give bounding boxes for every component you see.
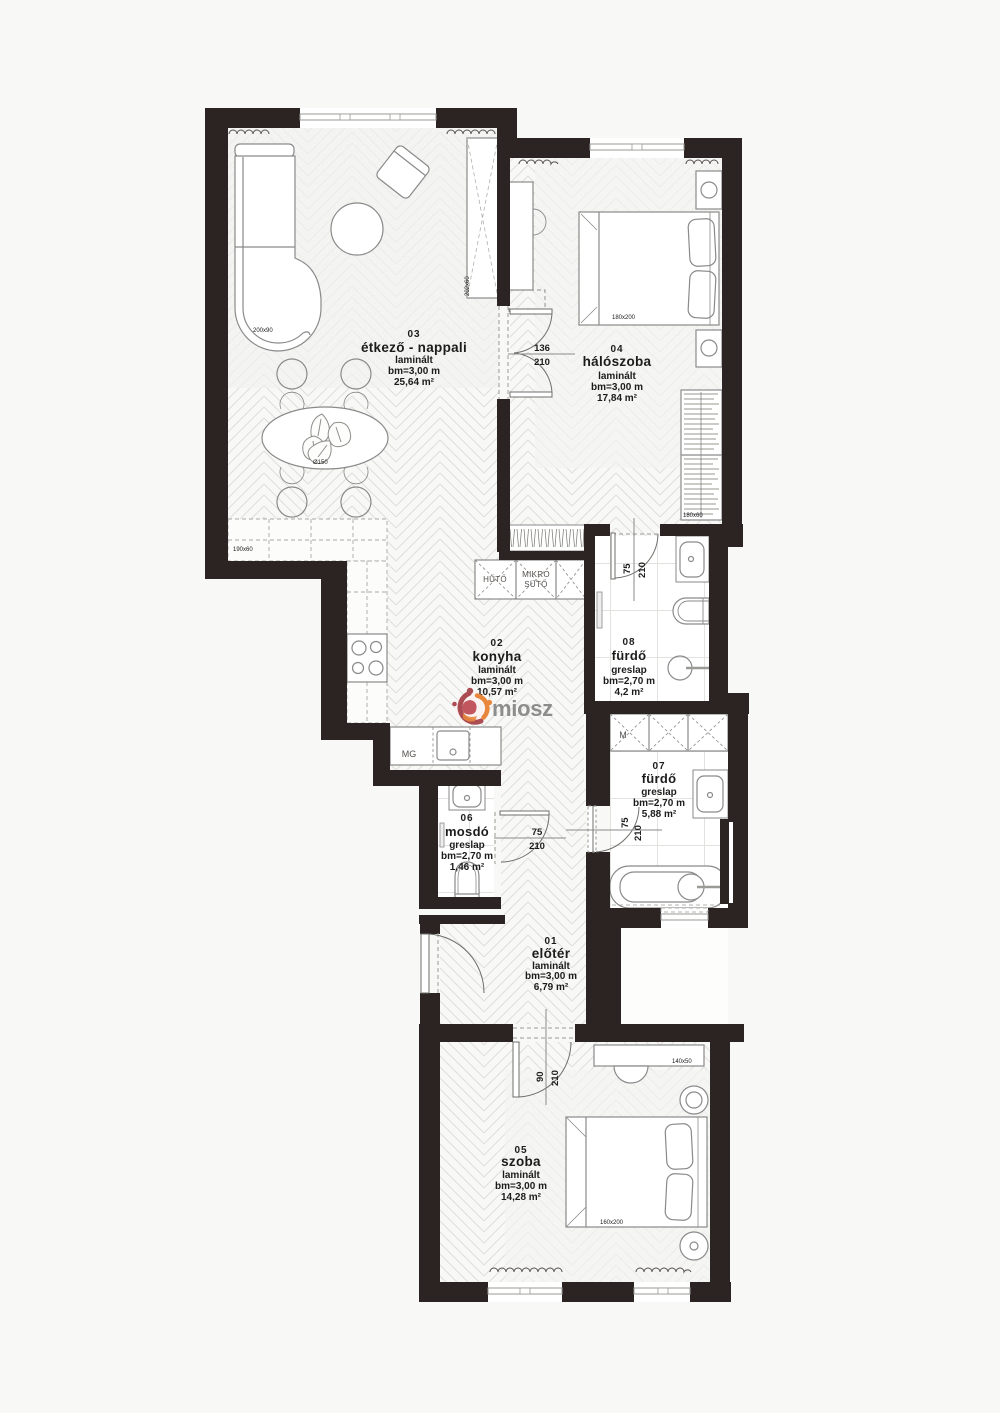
svg-text:bm=2,70 m: bm=2,70 m [603, 676, 655, 687]
svg-text:mosdó: mosdó [445, 824, 489, 839]
svg-text:06: 06 [460, 813, 473, 824]
svg-text:08: 08 [622, 637, 635, 648]
svg-text:210: 210 [633, 825, 644, 841]
svg-text:miosz: miosz [492, 696, 553, 721]
svg-text:MIKRO: MIKRO [522, 570, 550, 579]
svg-text:hálószoba: hálószoba [583, 354, 652, 369]
svg-text:75: 75 [532, 827, 543, 838]
svg-text:75: 75 [622, 563, 633, 574]
svg-text:fürdő: fürdő [642, 771, 677, 786]
svg-text:4,2 m²: 4,2 m² [615, 687, 645, 698]
svg-text:75: 75 [620, 817, 631, 828]
svg-text:1,46 m²: 1,46 m² [450, 862, 485, 873]
svg-text:136: 136 [534, 343, 550, 354]
svg-text:Ø150: Ø150 [313, 460, 328, 466]
svg-text:bm=3,00 m: bm=3,00 m [591, 382, 643, 393]
svg-text:202x60: 202x60 [465, 276, 471, 296]
svg-text:210: 210 [534, 357, 550, 368]
svg-text:laminált: laminált [395, 355, 433, 366]
svg-text:előtér: előtér [532, 946, 571, 961]
svg-text:fürdő: fürdő [612, 648, 647, 663]
svg-text:MG: MG [402, 749, 417, 759]
svg-text:bm=3,00 m: bm=3,00 m [471, 676, 523, 687]
svg-text:laminált: laminált [478, 665, 516, 676]
svg-text:160x200: 160x200 [600, 1220, 624, 1226]
svg-text:25,64 m²: 25,64 m² [394, 377, 435, 388]
svg-text:bm=3,00 m: bm=3,00 m [388, 366, 440, 377]
svg-text:greslap: greslap [611, 665, 647, 676]
svg-text:laminált: laminált [598, 371, 636, 382]
svg-text:17,84 m²: 17,84 m² [597, 393, 638, 404]
svg-text:180x60: 180x60 [683, 513, 703, 519]
svg-text:90: 90 [535, 1071, 546, 1082]
svg-text:laminált: laminált [502, 1170, 540, 1181]
svg-text:greslap: greslap [641, 787, 677, 798]
svg-text:greslap: greslap [449, 840, 485, 851]
svg-text:5,88 m²: 5,88 m² [642, 809, 677, 820]
svg-text:bm=2,70 m: bm=2,70 m [441, 851, 493, 862]
svg-text:konyha: konyha [472, 649, 521, 664]
svg-text:HŰTŐ: HŰTŐ [483, 575, 507, 584]
svg-text:M: M [619, 730, 627, 740]
svg-text:210: 210 [529, 841, 545, 852]
svg-text:03: 03 [407, 329, 420, 340]
svg-text:szoba: szoba [501, 1154, 541, 1169]
svg-text:6,79 m²: 6,79 m² [534, 982, 569, 993]
svg-text:190x60: 190x60 [233, 547, 253, 553]
svg-text:14,28 m²: 14,28 m² [501, 1192, 542, 1203]
svg-text:02: 02 [490, 638, 503, 649]
svg-text:étkező - nappali: étkező - nappali [361, 340, 467, 355]
svg-text:180x200: 180x200 [612, 315, 636, 321]
svg-text:210: 210 [550, 1070, 561, 1086]
svg-text:bm=3,00 m: bm=3,00 m [495, 1181, 547, 1192]
svg-text:bm=2,70 m: bm=2,70 m [633, 798, 685, 809]
svg-text:210: 210 [637, 562, 648, 578]
svg-text:200x90: 200x90 [253, 328, 273, 334]
svg-text:SÜTŐ: SÜTŐ [524, 580, 547, 589]
svg-text:140x50: 140x50 [672, 1059, 692, 1065]
svg-text:bm=3,00 m: bm=3,00 m [525, 971, 577, 982]
